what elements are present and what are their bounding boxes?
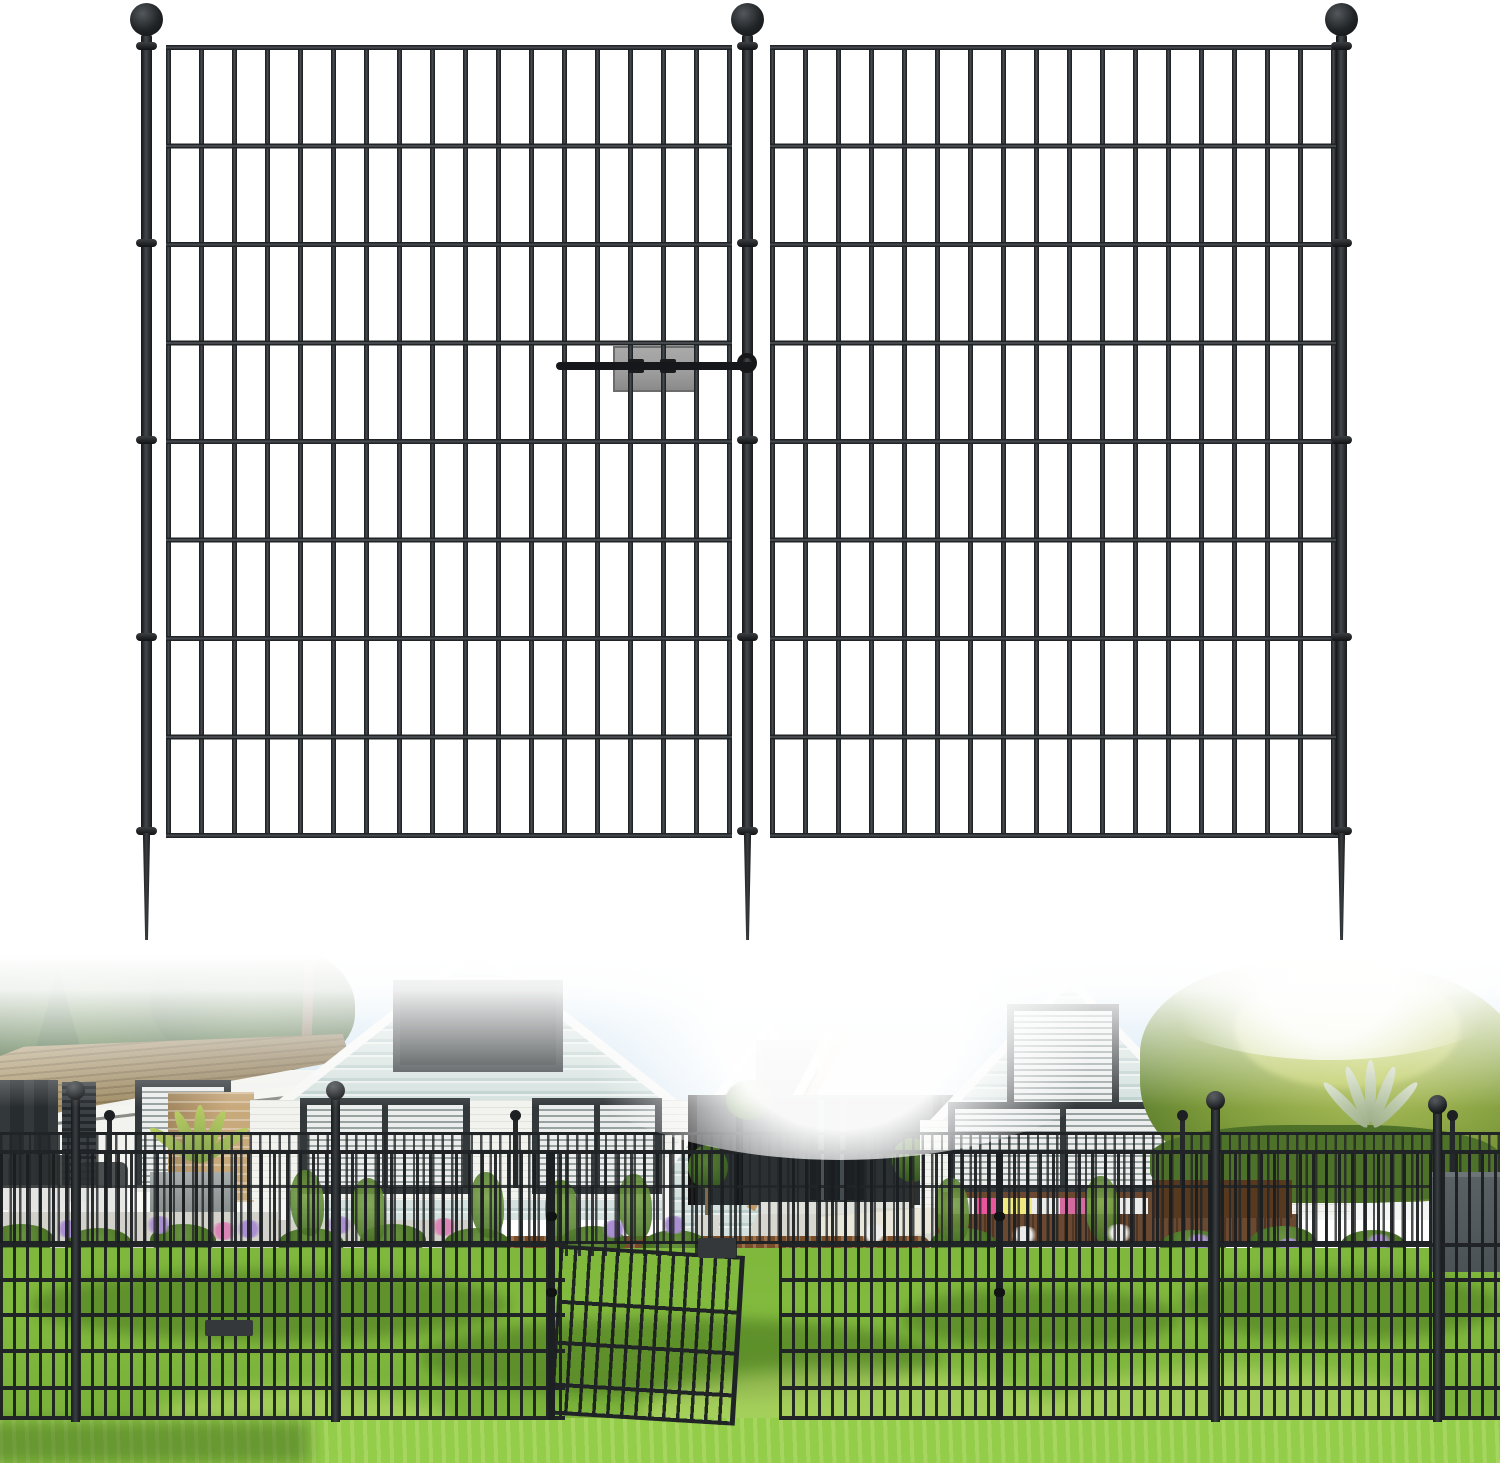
post-collar: [737, 633, 758, 641]
ball-finial-icon: [1447, 1110, 1458, 1121]
fence-grid-right: [770, 45, 1340, 838]
post-collar: [737, 42, 758, 50]
post-collar: [136, 239, 157, 247]
product-image: [0, 0, 1500, 1463]
fence-post-middle: [742, 34, 753, 834]
connector-pin: [556, 362, 754, 370]
connector-hook: [737, 353, 757, 373]
ball-finial-icon: [104, 1110, 115, 1121]
foreground-grass-shadow: [0, 1420, 310, 1463]
near-fence-post: [71, 1098, 80, 1422]
fence-grid-left: [166, 45, 732, 838]
post-collar: [136, 633, 157, 641]
joint-knob: [994, 1288, 1005, 1297]
joint-knob: [546, 1288, 557, 1297]
post-collar: [136, 42, 157, 50]
post-collar: [1331, 42, 1352, 50]
ball-finial-icon: [130, 3, 163, 36]
post-collar: [737, 239, 758, 247]
ball-finial-icon: [1325, 3, 1358, 36]
fence-row-near-left: [0, 1150, 565, 1420]
product-render: [0, 0, 1500, 980]
post-collar: [136, 436, 157, 444]
fence-post-right: [1336, 34, 1347, 834]
connector-plate: [205, 1320, 253, 1336]
post-collar: [1331, 436, 1352, 444]
installation-photo: [0, 940, 1500, 1463]
joint-knob: [546, 1212, 557, 1221]
white-fade-overlay: [0, 940, 1500, 1110]
ball-finial-icon: [510, 1110, 521, 1121]
joint-post: [996, 1152, 1003, 1420]
connector-plate: [698, 1238, 736, 1258]
ball-finial-icon: [1177, 1110, 1188, 1121]
fence-row-near-right: [779, 1150, 1500, 1420]
joint-knob: [994, 1212, 1005, 1221]
fence-post-left: [141, 34, 152, 834]
near-fence-post: [331, 1098, 340, 1422]
ball-finial-icon: [731, 3, 764, 36]
post-collar: [1331, 239, 1352, 247]
open-gate-panel: [550, 1245, 745, 1426]
near-fence-post: [1211, 1108, 1220, 1422]
near-fence-post: [1433, 1112, 1442, 1422]
post-collar: [1331, 633, 1352, 641]
post-collar: [737, 436, 758, 444]
joint-post: [548, 1152, 555, 1420]
